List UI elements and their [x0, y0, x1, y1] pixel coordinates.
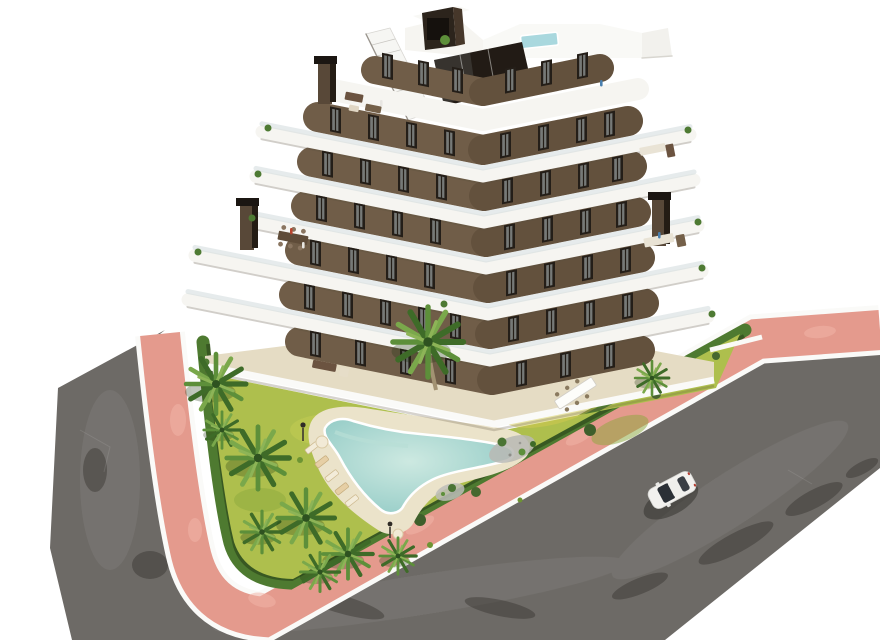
window [316, 195, 327, 222]
window [505, 66, 516, 93]
window [612, 155, 623, 182]
window [382, 53, 393, 80]
window [380, 299, 391, 326]
window [578, 162, 589, 189]
window [436, 173, 447, 200]
window [622, 292, 633, 319]
window [604, 111, 615, 138]
window [430, 218, 441, 245]
window [392, 210, 403, 237]
window [342, 291, 353, 318]
window [386, 255, 397, 282]
window [577, 52, 588, 79]
parasol [316, 436, 328, 448]
window [584, 300, 595, 327]
window [616, 201, 627, 228]
window [310, 239, 321, 266]
rooftop-pool [520, 32, 558, 49]
window [516, 360, 527, 387]
window [560, 351, 571, 378]
window [546, 308, 557, 335]
window [542, 216, 553, 243]
window [354, 203, 365, 230]
window [444, 129, 455, 156]
window [604, 342, 615, 369]
window [508, 315, 519, 342]
window [541, 59, 552, 86]
window [418, 60, 429, 87]
window [504, 223, 515, 250]
window [310, 331, 321, 358]
roof-plant [440, 35, 450, 45]
window [506, 269, 517, 296]
window [360, 158, 371, 185]
window [544, 262, 555, 289]
window [500, 131, 511, 158]
window [538, 124, 549, 151]
window [398, 166, 409, 193]
window [540, 170, 551, 197]
roof-parapet [642, 28, 672, 58]
window [424, 262, 435, 289]
window [452, 67, 463, 94]
window [330, 106, 341, 133]
window [576, 116, 587, 143]
window [580, 208, 591, 235]
window [620, 246, 631, 273]
window [304, 284, 315, 311]
window [348, 247, 359, 274]
aerial-render-canvas [0, 0, 880, 640]
window [368, 114, 379, 141]
window [502, 177, 513, 204]
aerial-site-render [0, 0, 880, 640]
window [582, 254, 593, 281]
window [355, 340, 366, 367]
window [406, 122, 417, 149]
window [322, 151, 333, 178]
